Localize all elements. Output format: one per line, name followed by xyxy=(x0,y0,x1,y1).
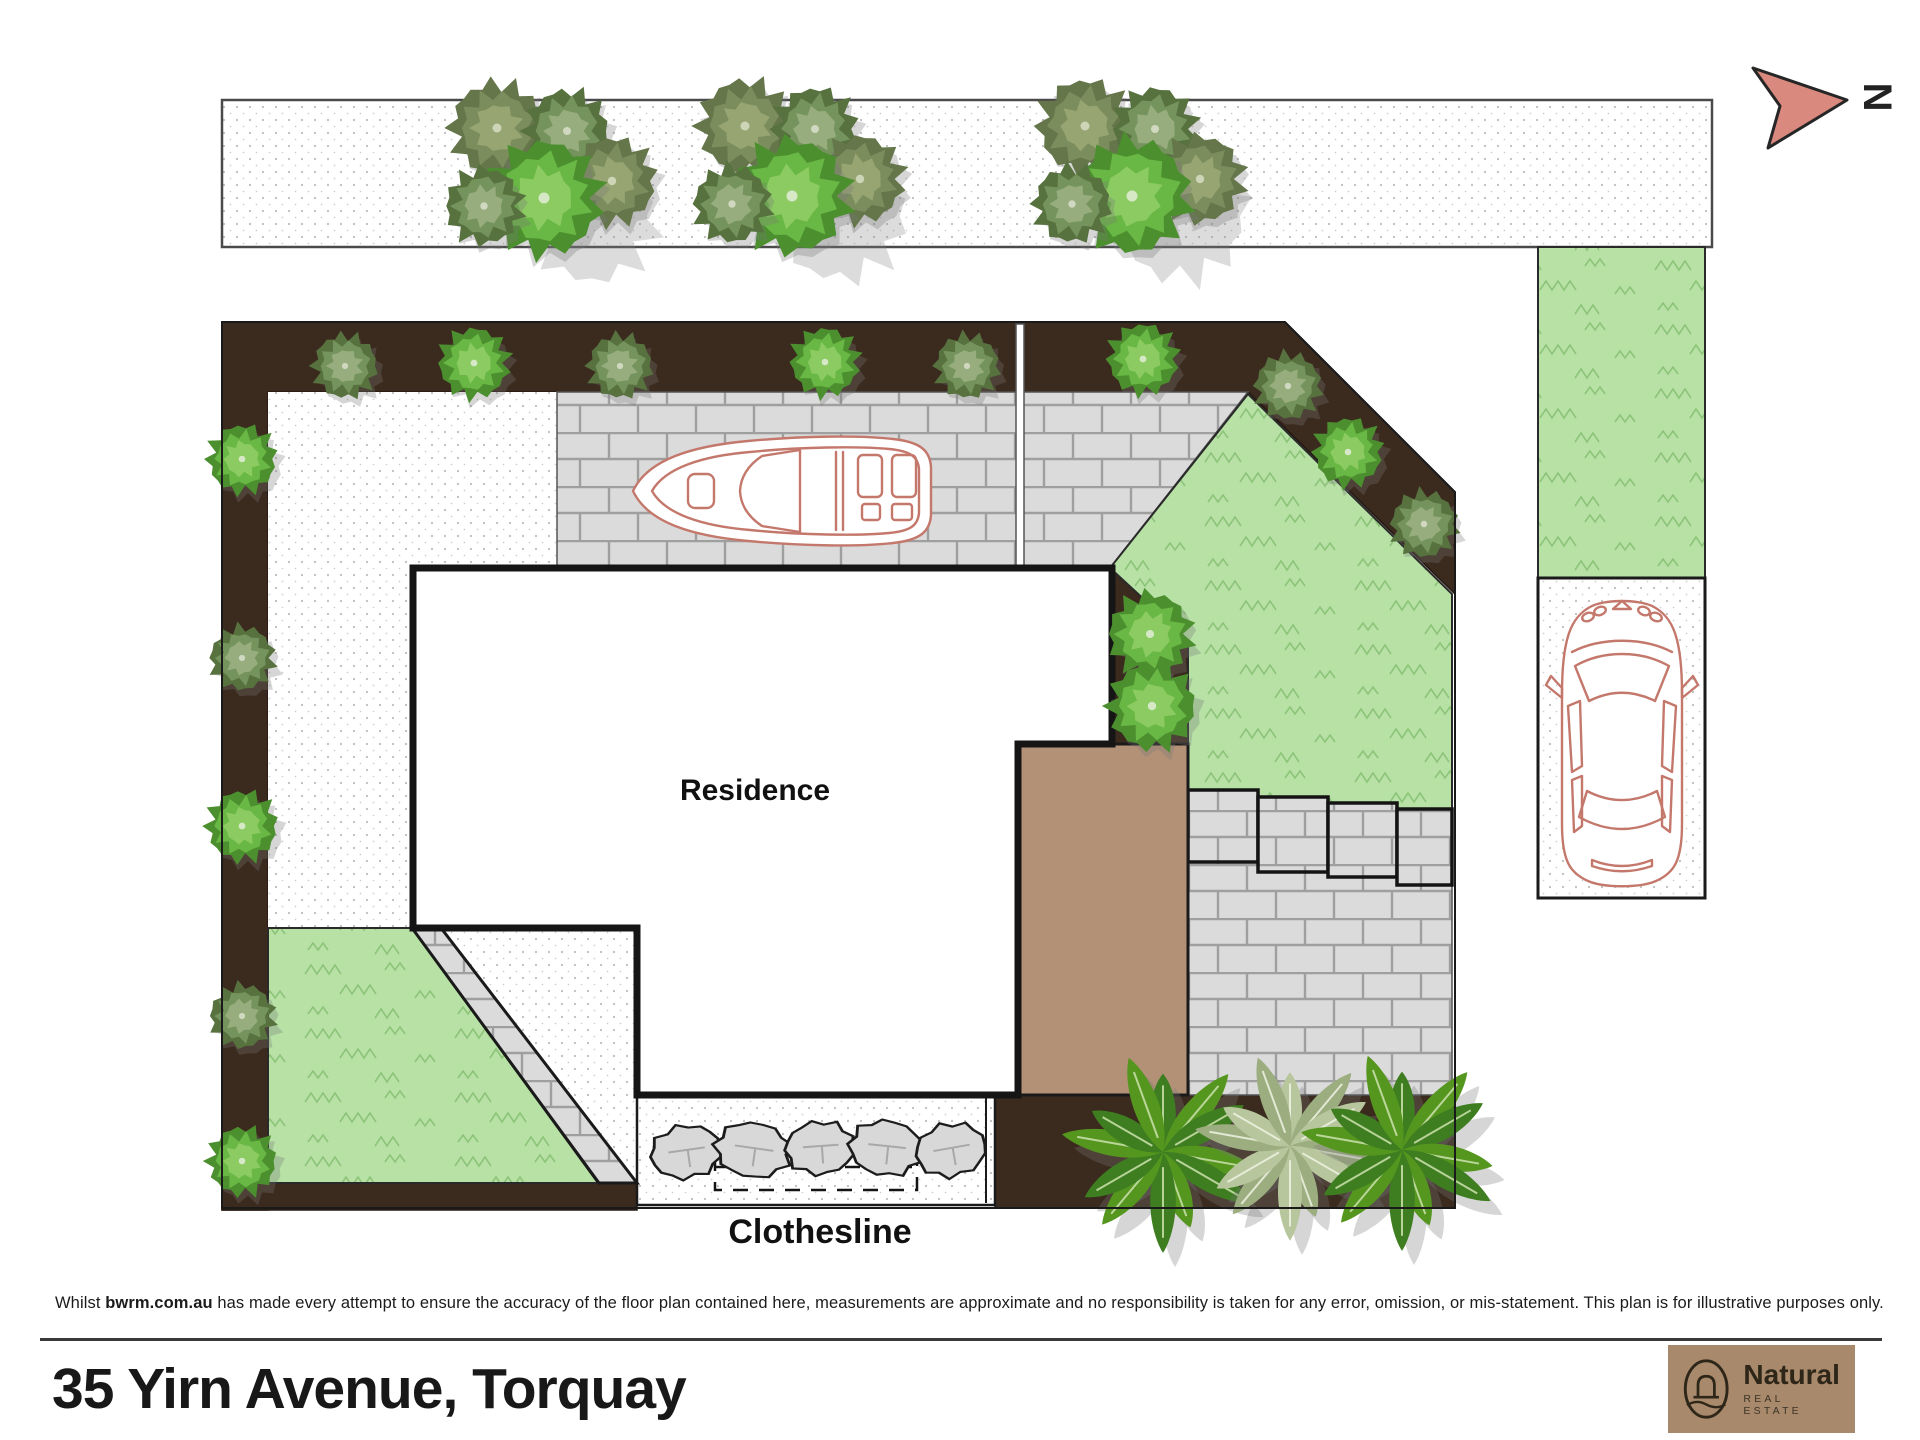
deck xyxy=(1018,744,1188,1095)
compass-arrow xyxy=(1753,68,1847,148)
disclaimer-prefix: Whilst xyxy=(55,1294,105,1312)
bottom-garden-bed xyxy=(222,1183,637,1210)
agency-logo: Natural REAL ESTATE xyxy=(1668,1345,1855,1433)
fence-line xyxy=(1016,324,1024,570)
agency-name: Natural xyxy=(1743,1361,1845,1389)
disclaimer-rest: has made every attempt to ensure the acc… xyxy=(213,1294,1884,1312)
agency-tagline: REAL ESTATE xyxy=(1743,1393,1845,1417)
nature-strip-grass xyxy=(1538,247,1705,578)
agency-logo-icon xyxy=(1678,1353,1734,1425)
site-plan-svg: N Residence Clothesline xyxy=(0,0,1920,1440)
step xyxy=(1397,809,1452,885)
step xyxy=(1328,803,1397,877)
divider-line xyxy=(40,1338,1882,1341)
compass-label: N xyxy=(1855,83,1899,112)
car xyxy=(1546,601,1698,886)
disclaimer-text: Whilst bwrm.com.au has made every attemp… xyxy=(55,1294,1900,1313)
disclaimer-site: bwrm.com.au xyxy=(105,1294,212,1312)
north-letter: N xyxy=(1855,83,1899,112)
brick-patio xyxy=(1188,858,1452,1095)
clothesline-label: Clothesline xyxy=(728,1213,911,1251)
floor-plan-page: N Residence Clothesline Whilst bwrm.com.… xyxy=(0,0,1920,1440)
step xyxy=(1258,797,1328,872)
step xyxy=(1188,790,1258,862)
street-verge xyxy=(222,100,1712,247)
property-address: 35 Yirn Avenue, Torquay xyxy=(52,1356,686,1422)
residence-label: Residence xyxy=(680,774,830,807)
